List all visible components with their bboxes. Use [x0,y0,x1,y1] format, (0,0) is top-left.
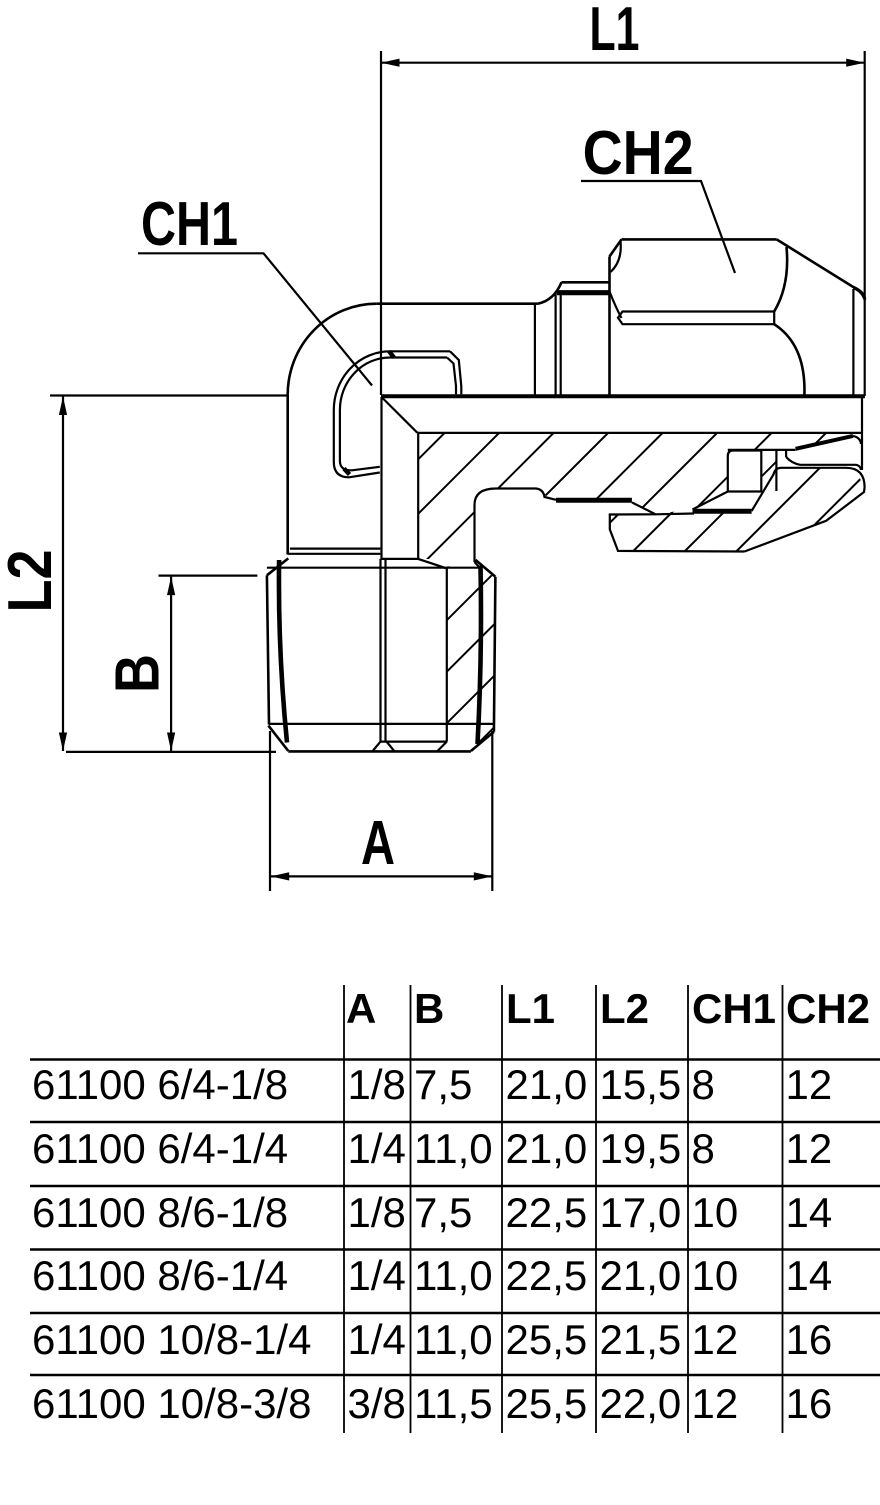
svg-text:61100 8/6-1/4: 61100 8/6-1/4 [32,1252,288,1299]
svg-text:61100 6/4-1/4: 61100 6/4-1/4 [32,1125,288,1172]
svg-text:22,5: 22,5 [506,1252,588,1299]
svg-text:L1: L1 [590,0,640,64]
svg-text:10: 10 [692,1189,739,1236]
svg-text:CH2: CH2 [583,119,694,188]
svg-text:10: 10 [692,1252,739,1299]
svg-text:7,5: 7,5 [414,1189,472,1236]
svg-text:14: 14 [786,1252,833,1299]
svg-text:1/4: 1/4 [348,1316,406,1363]
svg-text:22,5: 22,5 [506,1189,588,1236]
svg-text:L2: L2 [600,985,649,1032]
svg-text:7,5: 7,5 [414,1061,472,1108]
svg-text:61100 10/8-1/4: 61100 10/8-1/4 [32,1316,311,1363]
svg-text:3/8: 3/8 [348,1380,406,1427]
svg-text:11,0: 11,0 [414,1125,493,1172]
svg-text:14: 14 [786,1189,833,1236]
svg-text:17,0: 17,0 [600,1189,682,1236]
svg-text:21,5: 21,5 [600,1316,682,1363]
svg-text:19,5: 19,5 [600,1125,682,1172]
svg-text:25,5: 25,5 [506,1316,588,1363]
svg-text:A: A [361,809,395,878]
svg-text:L1: L1 [506,985,555,1032]
svg-text:21,0: 21,0 [506,1061,588,1108]
svg-text:11,0: 11,0 [414,1316,493,1363]
svg-text:CH1: CH1 [141,190,238,259]
svg-text:21,0: 21,0 [600,1252,682,1299]
svg-text:8: 8 [692,1061,715,1108]
svg-text:12: 12 [786,1125,833,1172]
svg-text:16: 16 [786,1316,833,1363]
svg-text:CH2: CH2 [786,985,870,1032]
svg-text:L2: L2 [0,550,65,613]
svg-text:16: 16 [786,1380,833,1427]
svg-text:8: 8 [692,1125,715,1172]
svg-text:1/4: 1/4 [348,1125,406,1172]
svg-text:25,5: 25,5 [506,1380,588,1427]
svg-text:12: 12 [786,1061,833,1108]
svg-text:12: 12 [692,1380,739,1427]
svg-text:22,0: 22,0 [600,1380,682,1427]
svg-text:61100 10/8-3/8: 61100 10/8-3/8 [32,1380,311,1427]
svg-text:12: 12 [692,1316,739,1363]
svg-text:1/8: 1/8 [348,1189,406,1236]
svg-text:11,5: 11,5 [414,1380,493,1427]
svg-text:A: A [346,985,376,1032]
svg-text:CH1: CH1 [692,985,776,1032]
svg-text:61100 8/6-1/8: 61100 8/6-1/8 [32,1189,288,1236]
svg-text:B: B [414,985,444,1032]
svg-text:11,0: 11,0 [414,1252,493,1299]
svg-text:B: B [104,654,173,693]
svg-text:61100 6/4-1/8: 61100 6/4-1/8 [32,1061,288,1108]
svg-text:1/8: 1/8 [348,1061,406,1108]
svg-text:1/4: 1/4 [348,1252,406,1299]
svg-text:15,5: 15,5 [600,1061,682,1108]
svg-text:21,0: 21,0 [506,1125,588,1172]
